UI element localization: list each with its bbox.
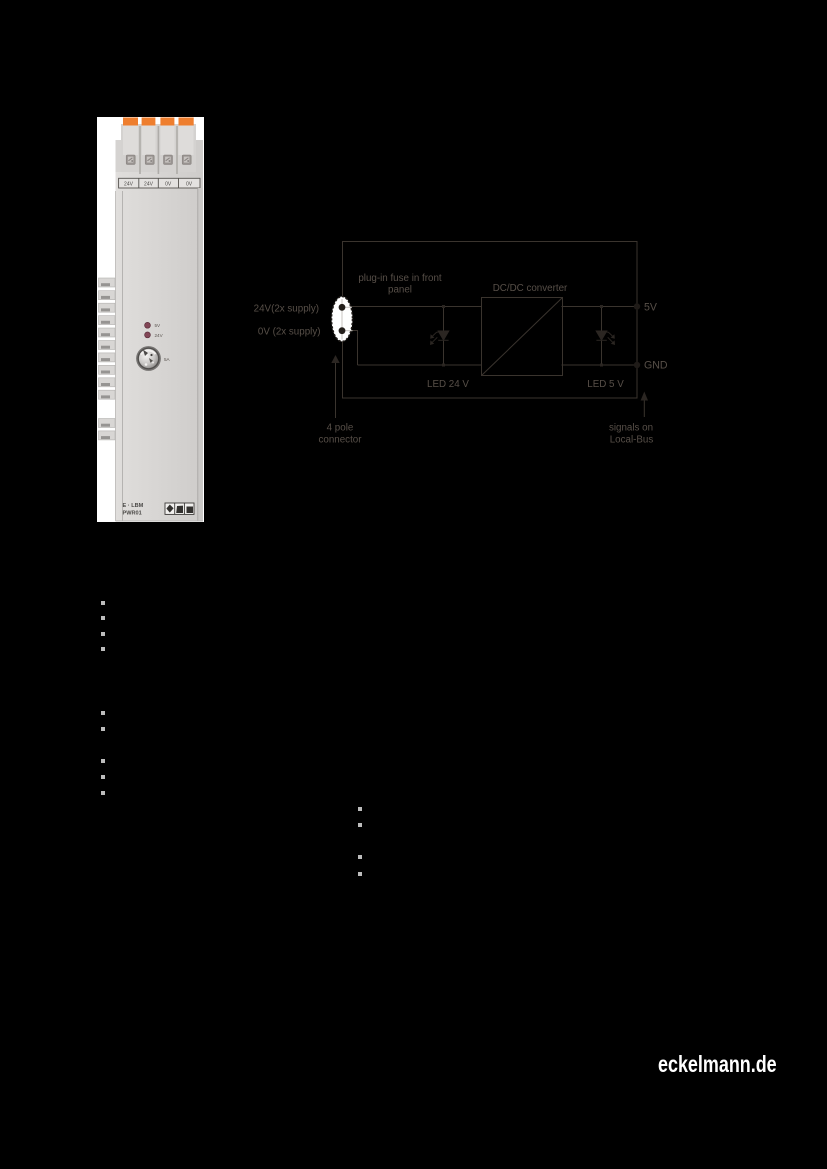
svg-text:connector: connector xyxy=(318,435,362,446)
svg-text:DC/DC converter: DC/DC converter xyxy=(493,283,568,294)
svg-text:LED 24 V: LED 24 V xyxy=(427,379,469,390)
svg-text:signals on: signals on xyxy=(609,423,653,434)
svg-text:24V(2x supply): 24V(2x supply) xyxy=(254,304,319,315)
svg-text:0V: 0V xyxy=(186,181,193,187)
svg-text:GND: GND xyxy=(644,360,668,372)
svg-text:0V: 0V xyxy=(165,181,172,187)
svg-text:5V: 5V xyxy=(644,301,658,313)
svg-text:Local-Bus: Local-Bus xyxy=(610,435,654,446)
svg-text:24V: 24V xyxy=(124,181,134,187)
svg-text:E · LBM: E · LBM xyxy=(123,503,144,509)
svg-text:5A: 5A xyxy=(164,357,171,362)
svg-text:0V (2x supply): 0V (2x supply) xyxy=(258,327,321,338)
svg-text:plug-in fuse in front: plug-in fuse in front xyxy=(358,273,442,284)
svg-text:4 pole: 4 pole xyxy=(327,423,354,434)
svg-text:PWR01: PWR01 xyxy=(123,511,142,517)
svg-text:24V: 24V xyxy=(144,181,154,187)
svg-text:panel: panel xyxy=(388,285,412,296)
svg-text:24V: 24V xyxy=(155,333,164,338)
svg-text:LED 5 V: LED 5 V xyxy=(587,379,624,390)
svg-text:5V: 5V xyxy=(155,323,162,328)
